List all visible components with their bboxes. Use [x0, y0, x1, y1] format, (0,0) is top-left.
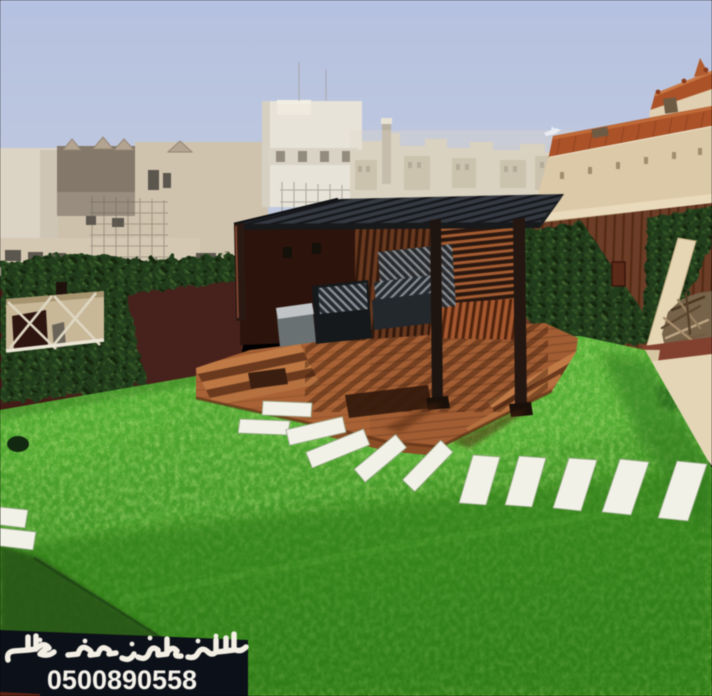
svg-text:0500890558: 0500890558 [47, 665, 197, 695]
